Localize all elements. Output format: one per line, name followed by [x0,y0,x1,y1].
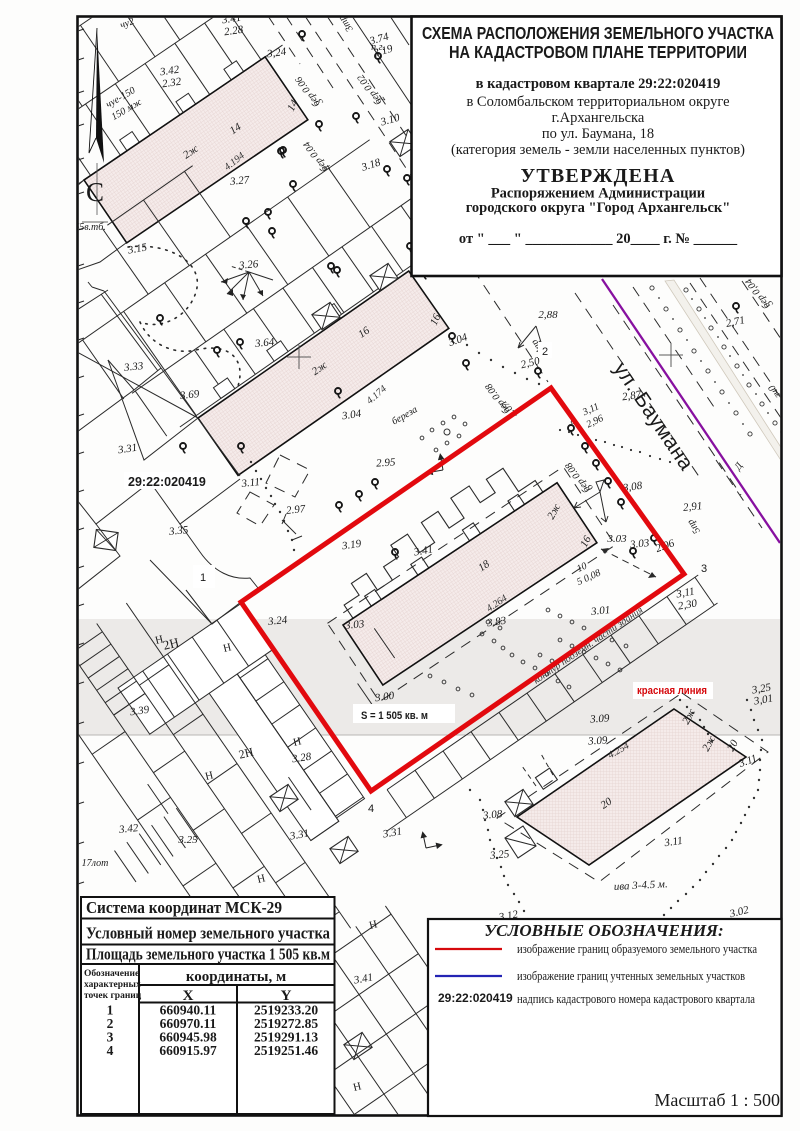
svg-text:1: 1 [200,572,206,584]
svg-text:надпись кадастрового номера ка: надпись кадастрового номера кадастрового… [517,992,755,1006]
svg-text:3.25: 3.25 [177,834,198,846]
svg-text:характерных: характерных [84,980,141,990]
svg-text:2: 2 [542,346,548,358]
svg-text:3.09: 3.09 [587,734,609,747]
svg-text:4: 4 [107,1043,114,1058]
svg-text:3.26: 3.26 [237,258,259,272]
svg-text:Площадь земельного участка 1 5: Площадь земельного участка 1 505 кв.м [86,945,330,964]
svg-text:в Соломбальском территориально: в Соломбальском территориальном округе [466,94,729,110]
svg-text:3.11: 3.11 [240,476,261,490]
svg-text:Условный номер земельного учас: Условный номер земельного участка [86,924,330,943]
svg-text:29:22:020419: 29:22:020419 [128,475,206,489]
svg-text:г.Архангельска: г.Архангельска [552,110,645,126]
svg-text:С: С [86,177,104,207]
svg-text:65в.тб.: 65в.тб. [74,222,106,233]
svg-text:2519251.46: 2519251.46 [254,1043,318,1058]
svg-text:4: 4 [368,803,374,815]
svg-text:660915.97: 660915.97 [159,1043,217,1058]
svg-text:п.г.: п.г. [371,42,385,53]
svg-text:(категория земель - земли насе: (категория земель - земли населенных пун… [451,142,745,158]
svg-text:красная линия: красная линия [637,685,707,697]
svg-text:в кадастровом квартале 29:22:0: в кадастровом квартале 29:22:020419 [476,76,721,92]
svg-text:3.08: 3.08 [481,808,503,822]
svg-text:2.97: 2.97 [285,503,306,517]
svg-text:3.42: 3.42 [117,822,139,836]
svg-text:городского округа "Город Архан: городского округа "Город Архангельск" [466,200,731,216]
svg-text:2,88: 2,88 [538,309,558,321]
svg-text:2,91: 2,91 [682,500,702,514]
svg-text:Масштаб 1 : 500: Масштаб 1 : 500 [654,1090,780,1110]
svg-text:точек границ: точек границ [84,991,142,1001]
svg-text:от " ___ " ____________ 20____: от " ___ " ____________ 20____ г. № ____… [459,231,738,247]
svg-text:3.64: 3.64 [253,336,275,350]
svg-text:3.01: 3.01 [589,604,610,618]
svg-text:3.27: 3.27 [228,174,250,188]
svg-text:3.03: 3.03 [628,537,650,551]
svg-text:3.69: 3.69 [178,388,200,402]
svg-text:3.25: 3.25 [488,848,510,862]
svg-text:S = 1 505 кв. м: S = 1 505 кв. м [361,710,428,722]
svg-text:Обозначение: Обозначение [84,968,139,979]
svg-text:3.33: 3.33 [122,360,144,374]
svg-text:17лот: 17лот [82,858,109,869]
svg-text:координаты, м: координаты, м [186,969,286,985]
svg-text:3.03: 3.03 [343,618,365,632]
svg-text:3.35: 3.35 [167,524,189,538]
svg-text:2.95: 2.95 [376,456,397,469]
svg-text:Система координат МСК-29: Система координат МСК-29 [86,898,282,917]
svg-text:УТВЕРЖДЕНА: УТВЕРЖДЕНА [520,165,675,187]
svg-text:3: 3 [701,563,707,575]
svg-text:по ул. Баумана, 18: по ул. Баумана, 18 [542,126,654,142]
svg-text:3.03: 3.03 [606,533,627,545]
svg-text:НА КАДАСТРОВОМ ПЛАНЕ ТЕРРИТОРИ: НА КАДАСТРОВОМ ПЛАНЕ ТЕРРИТОРИИ [449,42,747,62]
svg-text:изображение границ образуемого: изображение границ образуемого земельног… [517,942,757,956]
svg-text:3.09: 3.09 [589,712,611,725]
svg-text:изображение границ учтенных зе: изображение границ учтенных земельных уч… [517,969,745,983]
svg-text:СХЕМА РАСПОЛОЖЕНИЯ ЗЕМЕЛЬНОГО: СХЕМА РАСПОЛОЖЕНИЯ ЗЕМЕЛЬНОГО УЧАСТКА [422,23,774,43]
svg-text:УСЛОВНЫЕ ОБОЗНАЧЕНИЯ:: УСЛОВНЫЕ ОБОЗНАЧЕНИЯ: [484,921,723,940]
svg-text:3.24: 3.24 [266,614,288,628]
svg-text:29:22:020419: 29:22:020419 [438,991,513,1005]
